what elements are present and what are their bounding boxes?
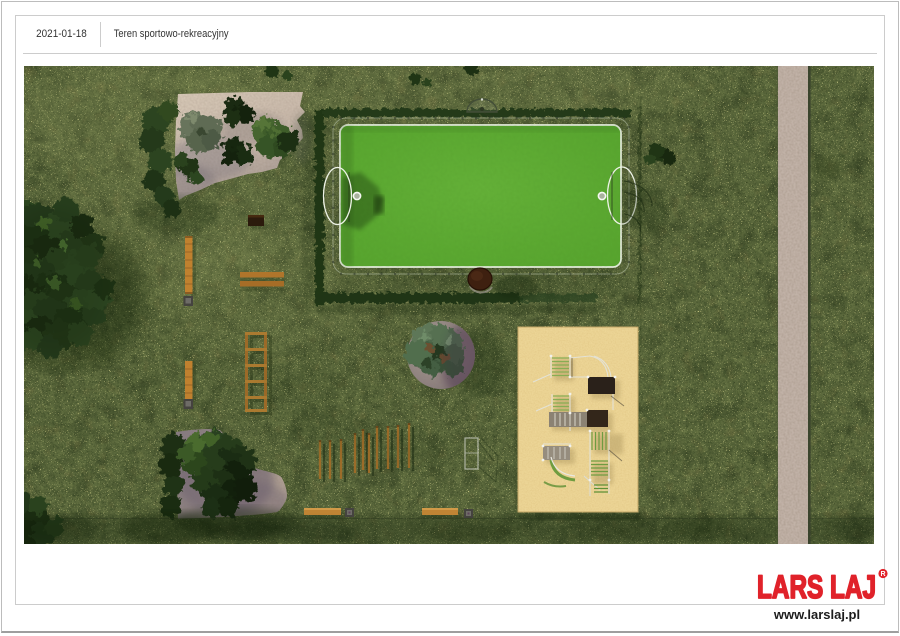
svg-text:LARS LAJ: LARS LAJ — [757, 569, 876, 605]
svg-text:R: R — [880, 571, 885, 578]
